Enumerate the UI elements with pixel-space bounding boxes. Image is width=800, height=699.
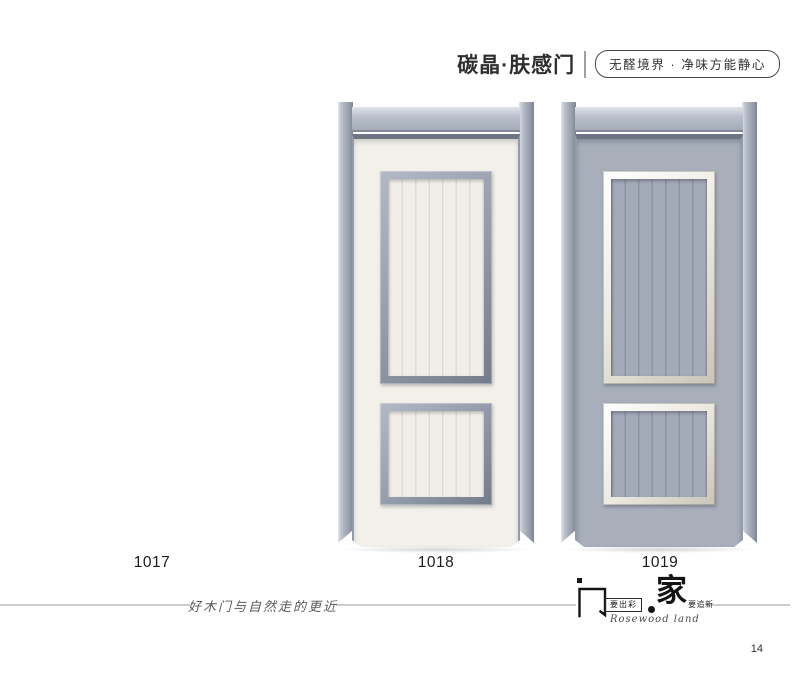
home-character: 家 [656, 574, 687, 608]
door-panel-lower [380, 403, 492, 505]
door-frame-post-left [338, 102, 353, 543]
door-panel-grooves [611, 411, 707, 497]
door-image-1019 [561, 102, 757, 548]
door-panel-lower [603, 403, 715, 505]
door-panel-grooves [611, 179, 707, 376]
door-panel-upper [603, 171, 715, 384]
door-image-1018 [338, 102, 534, 548]
model-label-1019: 1019 [610, 554, 710, 572]
header-divider [584, 51, 586, 78]
door-frame-post-right [742, 102, 757, 543]
door-frame-post-right [519, 102, 534, 543]
footer-rule-segment [706, 604, 790, 606]
brand-tag-home: 要追新 [688, 599, 714, 610]
page-title: 碳晶·肤感门 [457, 49, 575, 79]
door-frame-head-rail [352, 107, 520, 132]
door-panel-grooves [388, 411, 484, 497]
door-frame-head-rail [575, 107, 743, 132]
footer-rule-segment [0, 604, 190, 606]
header-badge: 无醛境界 · 净味方能静心 [595, 50, 780, 78]
model-label-1018: 1018 [386, 554, 486, 572]
door-leaf [575, 134, 743, 547]
model-label-1017: 1017 [102, 554, 202, 572]
footer-rule-segment [336, 604, 576, 606]
brand-tag-door: 要出彩 [605, 598, 642, 612]
brand-logo: 要出彩 家 要追新 Rosewood land [574, 574, 714, 626]
catalog-page: 碳晶·肤感门 无醛境界 · 净味方能静心 [0, 0, 800, 699]
footer-slogan: 好木门与自然走的更近 [188, 596, 338, 615]
door-frame-post-left [561, 102, 576, 543]
page-number: 14 [751, 643, 763, 655]
door-panel-grooves [388, 179, 484, 376]
brand-script-text: Rosewood land [610, 614, 700, 625]
brand-dot-icon [648, 606, 655, 613]
door-panel-upper [380, 171, 492, 384]
page-header: 碳晶·肤感门 无醛境界 · 净味方能静心 [457, 49, 780, 79]
door-leaf [352, 134, 520, 547]
